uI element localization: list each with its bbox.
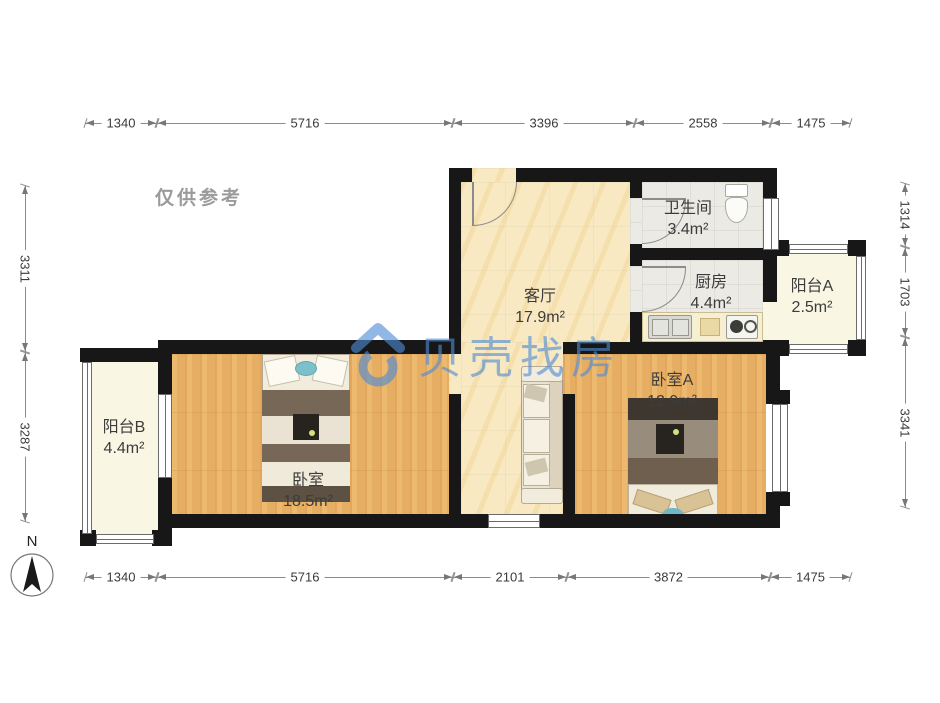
dimension-segment: 1475 (771, 116, 851, 130)
dimension-segment: 3341 (898, 337, 912, 508)
floor-plan: 仅供参考 (0, 0, 940, 703)
dimension-segment: 1703 (898, 247, 912, 337)
room-name: 厨房 (661, 272, 761, 293)
wall (158, 514, 488, 528)
sofa (521, 366, 563, 504)
wall (449, 394, 461, 528)
bedroom-a-label: 卧室A 12.9m² (612, 370, 732, 412)
entrance-opening (472, 168, 516, 182)
room-name: 卧室A (612, 370, 732, 391)
wall (642, 248, 763, 260)
balcony-a-label: 阳台A 2.5m² (767, 276, 857, 318)
compass: N (6, 534, 58, 605)
room-area: 4.4m² (661, 293, 761, 314)
room-area: 2.5m² (767, 297, 857, 318)
dimension-segment: 5716 (157, 116, 453, 130)
balcony-b-label: 阳台B 4.4m² (79, 417, 169, 459)
bedroom-a-bay-window (772, 404, 788, 492)
bathroom-window (763, 198, 779, 250)
bedroom-door-opening (449, 352, 461, 394)
dimension-segment: 3396 (453, 116, 635, 130)
dimension-label: 3311 (18, 250, 33, 288)
dimension-label: 1340 (102, 570, 141, 585)
dimension-label: 3396 (525, 116, 564, 131)
room-area: 18.5m² (248, 491, 368, 512)
room-name: 卧室 (248, 470, 368, 491)
wall (630, 244, 642, 266)
dimension-segment: 5716 (157, 570, 453, 584)
dimension-label: 2101 (491, 570, 530, 585)
room-name: 客厅 (490, 286, 590, 307)
wall (516, 168, 777, 182)
wall (158, 348, 172, 394)
kitchen-label: 厨房 4.4m² (661, 272, 761, 314)
dimension-label: 1475 (791, 570, 830, 585)
wall (563, 394, 575, 528)
wall (540, 514, 780, 528)
room-name: 阳台A (767, 276, 857, 297)
room-area: 3.4m² (638, 219, 738, 240)
room-area: 17.9m² (490, 307, 590, 328)
wall (80, 348, 170, 362)
compass-icon (6, 550, 58, 600)
kitchen-door-opening (630, 266, 642, 312)
dimension-label: 1475 (792, 116, 831, 131)
balcony-a-bottom-window (789, 344, 848, 354)
wall (563, 342, 780, 354)
dimension-segment: 2101 (453, 570, 567, 584)
dimension-label: 3872 (649, 570, 688, 585)
dimension-segment: 3287 (18, 352, 32, 522)
dimension-segment: 3311 (18, 185, 32, 352)
wall-corner (771, 340, 789, 356)
bedroom-label: 卧室 18.5m² (248, 470, 368, 512)
sink (648, 315, 692, 339)
dimension-label: 3287 (18, 418, 33, 457)
bathroom-label: 卫生间 3.4m² (638, 198, 738, 240)
wall (766, 492, 780, 528)
dimension-segment: 1475 (770, 570, 851, 584)
corridor-window (488, 514, 540, 528)
wall (449, 168, 461, 354)
wall-corner (848, 240, 866, 256)
wall-corner (848, 340, 866, 356)
dimension-label: 1340 (102, 116, 141, 131)
balcony-a-right-window (856, 256, 866, 340)
dimension-label: 1703 (898, 273, 913, 312)
dimension-segment: 1314 (898, 183, 912, 247)
bedroom-a-door-opening (563, 354, 575, 394)
wall (763, 168, 777, 198)
balcony-a-top-window (789, 244, 848, 254)
balcony-b-bottom-window (96, 534, 154, 544)
room-area: 4.4m² (79, 438, 169, 459)
dimension-label: 3341 (898, 403, 913, 442)
wall (158, 340, 461, 354)
disclaimer-text: 仅供参考 (155, 183, 243, 210)
dimension-label: 2558 (684, 116, 723, 131)
room-area: 12.9m² (612, 391, 732, 412)
wall-corner (766, 390, 790, 404)
wall (630, 168, 642, 198)
dimension-segment: 2558 (635, 116, 771, 130)
bed-a (628, 398, 718, 524)
dimension-segment: 3872 (567, 570, 770, 584)
dimension-segment: 1340 (85, 570, 157, 584)
compass-north-label: N (6, 534, 58, 550)
dimension-label: 5716 (286, 570, 325, 585)
dimension-segment: 1340 (85, 116, 157, 130)
room-name: 阳台B (79, 417, 169, 438)
room-name: 卫生间 (638, 198, 738, 219)
living-room-label: 客厅 17.9m² (490, 286, 590, 328)
stove (726, 315, 758, 339)
kitchen-counter (642, 312, 763, 342)
cutting-board (700, 318, 720, 336)
dimension-label: 1314 (898, 196, 913, 235)
cushion (295, 361, 317, 376)
wall-corner (152, 530, 168, 546)
dimension-label: 5716 (286, 116, 325, 131)
